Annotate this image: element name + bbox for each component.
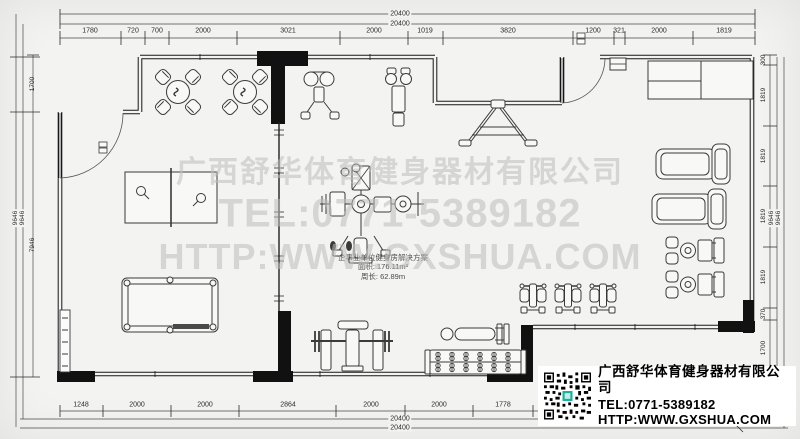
dim-label: 1700 [30, 77, 37, 91]
company-tel: TEL:0771-5389182 [598, 397, 790, 413]
dim-label: 2864 [280, 402, 296, 409]
round-table-chairs-2 [221, 68, 269, 116]
door-swing-arc [562, 58, 605, 103]
door-swing-arc [60, 113, 123, 178]
watermark-url: HTTP:WWW.GXSHUA.COM [159, 236, 642, 278]
watermark-tel: TEL:0771-5389182 [219, 192, 582, 237]
strength-machine-1 [666, 237, 724, 264]
dim-label: 720 [127, 28, 139, 35]
dim-label: 300 [761, 55, 768, 66]
door-top [562, 58, 605, 103]
round-table-chairs-1 [154, 68, 202, 116]
dim-label: 700 [151, 28, 163, 35]
exercise-bike-1 [520, 284, 546, 313]
dim-label: 1778 [495, 402, 511, 409]
door-left [60, 113, 123, 178]
cable-crossover-machine [459, 100, 537, 146]
dim-total-label: 9646 [776, 209, 783, 227]
dim-label: 321 [613, 28, 625, 35]
dim-label: 1248 [73, 402, 89, 409]
dim-label: 1819 [716, 28, 732, 35]
dumbbell-rack [425, 350, 526, 374]
dim-total-label: 20400 [388, 425, 411, 432]
dim-label: 2000 [197, 402, 213, 409]
dim-label: 7946 [30, 238, 37, 252]
dim-label: 1819 [761, 149, 768, 163]
dim-label: 2000 [431, 402, 447, 409]
company-info-text: 广西舒华体育健身器材有限公司 TEL:0771-5389182 HTTP:WWW… [598, 364, 790, 429]
pool-table [122, 277, 218, 333]
flat-bench [441, 324, 509, 344]
radiator [60, 310, 70, 372]
dim-label: 3021 [280, 28, 296, 35]
strength-machine-2 [666, 271, 724, 298]
reception-counter [610, 58, 753, 99]
dim-total-label: 20400 [388, 11, 411, 18]
lat-pulldown-machine [386, 68, 412, 126]
dim-label: 1019 [417, 28, 433, 35]
dim-label: 3820 [500, 28, 516, 35]
dim-total-label: 20400 [388, 416, 411, 423]
shoulder-press-machine [301, 72, 339, 119]
dim-label: 370 [761, 309, 768, 320]
treadmill-2 [652, 189, 726, 229]
floor-plan-canvas: 1780 720 700 2000 3021 2000 1019 3820 12… [0, 0, 800, 439]
dim-label: 1819 [761, 88, 768, 102]
dim-total-label: 9646 [20, 209, 27, 227]
company-url: HTTP:WWW.GXSHUA.COM [598, 412, 790, 428]
dim-label: 1819 [761, 209, 768, 223]
watermark-company: 广西舒华体育健身器材有限公司 [176, 147, 624, 191]
treadmill-1 [656, 144, 730, 184]
dim-label: 1819 [761, 270, 768, 284]
dim-label: 1700 [761, 341, 768, 355]
qr-code-icon [544, 372, 591, 420]
dim-total-label: 20400 [388, 21, 411, 28]
exercise-bike-2 [555, 284, 581, 313]
dim-label: 2000 [363, 402, 379, 409]
dim-label: 1200 [585, 28, 601, 35]
dim-label: 1780 [82, 28, 98, 35]
exercise-bike-3 [590, 284, 616, 313]
dim-label: 2000 [129, 402, 145, 409]
dim-label: 2000 [651, 28, 667, 35]
dim-label: 2000 [195, 28, 211, 35]
dim-label: 2000 [366, 28, 382, 35]
company-name: 广西舒华体育健身器材有限公司 [598, 364, 790, 397]
bench-press [311, 321, 393, 371]
company-info-box: 广西舒华体育健身器材有限公司 TEL:0771-5389182 HTTP:WWW… [538, 366, 796, 426]
